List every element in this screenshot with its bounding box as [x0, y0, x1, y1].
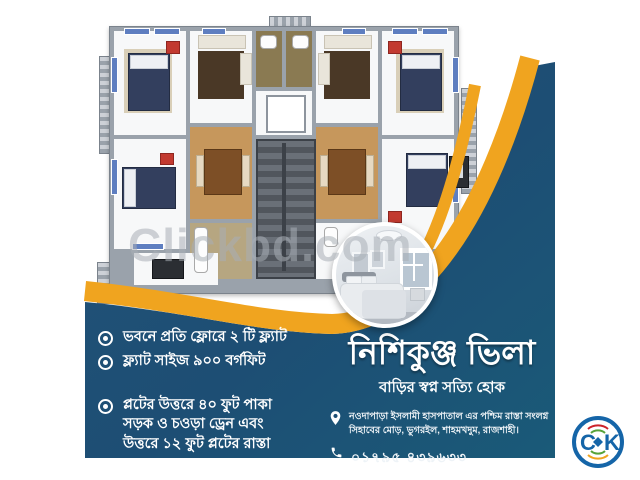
phone-row: ০১৭৯৫ ৪৩৯৬৩৩: [330, 446, 556, 470]
red-cushion: [388, 41, 402, 54]
ac-unit: [449, 156, 469, 188]
toilet: [292, 35, 309, 49]
sofa: [240, 53, 252, 85]
fisheye-bullet-icon: [98, 355, 113, 370]
window: [202, 28, 226, 35]
red-cushion: [388, 211, 402, 223]
pillow: [124, 169, 136, 207]
feature-text: ফ্ল্যাট সাইজ ৯০০ বর্গফিট: [123, 352, 266, 371]
toilet: [260, 35, 277, 49]
bullet-dot: [103, 404, 108, 409]
bathtub: [194, 227, 208, 273]
window: [422, 28, 448, 35]
feature-text: ভবনে প্রতি ফ্লোরে ২ টি ফ্ল্যাট: [123, 328, 287, 347]
sofa: [318, 53, 330, 85]
pillow: [130, 55, 168, 69]
flyer-canvas: ভবনে প্রতি ফ্লোরে ২ টি ফ্ল্যাট ফ্ল্যাট স…: [0, 0, 640, 480]
clickbd-logo-mark: C K: [570, 414, 626, 470]
desk: [152, 259, 184, 279]
chairs: [242, 155, 250, 187]
elevator-shaft: [266, 95, 306, 133]
wall-art: [352, 252, 370, 274]
window: [124, 28, 150, 35]
dining-table: [204, 149, 242, 195]
staircase: [256, 139, 316, 279]
window: [132, 243, 164, 250]
bedroom-photo: [332, 222, 438, 328]
brand-block: নিশিকুঞ্জ ভিলা বাড়ির স্বপ্ন সত্যি হোক: [328, 336, 556, 401]
stair-railing: [282, 143, 286, 271]
window-mullion: [413, 251, 415, 281]
sink: [324, 227, 338, 247]
photo-window: [400, 248, 432, 290]
wall-art: [370, 250, 385, 269]
phone-number: ০১৭৯৫ ৪৩৯৬৩৩: [351, 446, 467, 470]
location-pin-icon: [330, 410, 341, 426]
clickbd-logo: C K: [556, 403, 640, 480]
pillow: [402, 55, 440, 69]
chairs: [366, 155, 374, 187]
living-rug: [198, 51, 244, 99]
nightstand: [410, 288, 425, 301]
window: [342, 28, 366, 35]
red-cushion: [166, 41, 180, 54]
window: [452, 57, 459, 93]
feature-item: প্লটের উত্তরে ৪০ ফুট পাকা সড়ক ও চওড়া ড…: [98, 396, 306, 454]
tagline: বাড়ির স্বপ্ন সত্যি হোক: [328, 376, 556, 401]
contact-block: নওদাপাড়া ইসলামী হাসপাতাল এর পশ্চিম রাস্…: [330, 410, 556, 477]
bullet-dot: [103, 336, 108, 341]
living-rug: [324, 51, 370, 99]
window: [154, 28, 180, 35]
telephone-icon: [330, 446, 343, 459]
bullet-dot: [103, 360, 108, 365]
red-cushion: [160, 153, 174, 165]
window: [111, 57, 118, 93]
dining-table: [328, 149, 366, 195]
logo-letter-k: K: [604, 430, 620, 455]
sofa: [324, 35, 372, 49]
feature-item: ফ্ল্যাট সাইজ ৯০০ বর্গফিট: [98, 352, 306, 371]
photo-blanket: [362, 290, 406, 318]
feature-text: প্লটের উত্তরে ৪০ ফুট পাকা সড়ক ও চওড়া ড…: [123, 396, 272, 454]
window: [392, 28, 418, 35]
feature-item: ভবনে প্রতি ফ্লোরে ২ টি ফ্ল্যাট: [98, 328, 306, 347]
fisheye-bullet-icon: [98, 399, 113, 414]
chairs: [196, 155, 204, 187]
chairs: [320, 155, 328, 187]
fisheye-bullet-icon: [98, 331, 113, 346]
address-row: নওদাপাড়া ইসলামী হাসপাতাল এর পশ্চিম রাস্…: [330, 410, 556, 439]
ac-vent: [454, 165, 463, 178]
page-title: নিশিকুঞ্জ ভিলা: [328, 336, 556, 371]
address-text: নওদাপাড়া ইসলামী হাসপাতাল এর পশ্চিম রাস্…: [349, 410, 548, 439]
ceiling-light: [376, 230, 402, 241]
window: [111, 159, 118, 195]
window-mullion: [403, 264, 423, 266]
sofa: [198, 35, 246, 49]
feature-list: ভবনে প্রতি ফ্লোরে ২ টি ফ্ল্যাট ফ্ল্যাট স…: [98, 328, 306, 459]
pillow: [408, 155, 446, 169]
